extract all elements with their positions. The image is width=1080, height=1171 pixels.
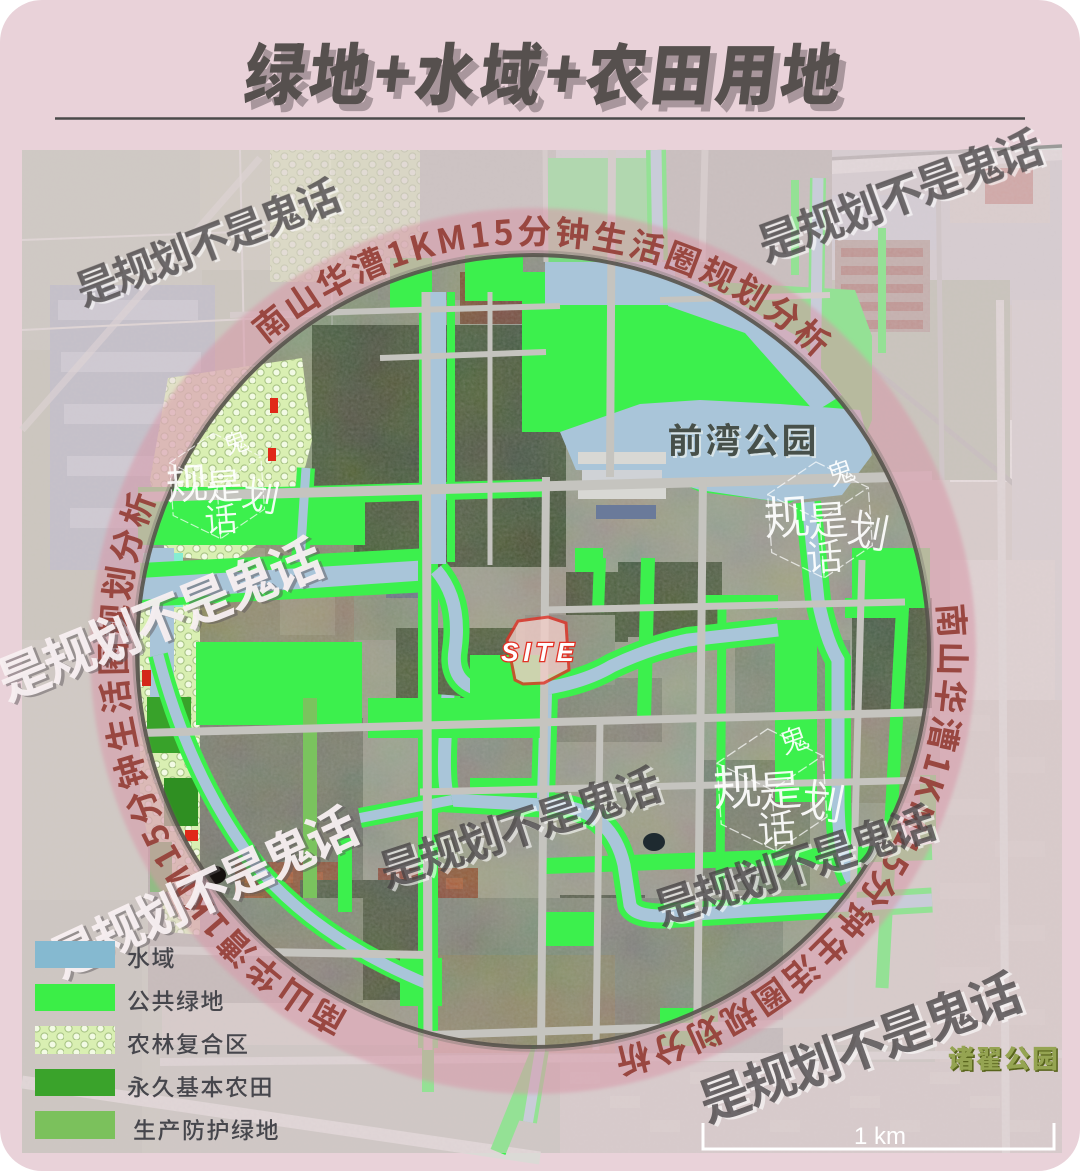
svg-text:1 km: 1 km	[854, 1123, 906, 1150]
svg-text:SITE: SITE	[501, 637, 579, 667]
